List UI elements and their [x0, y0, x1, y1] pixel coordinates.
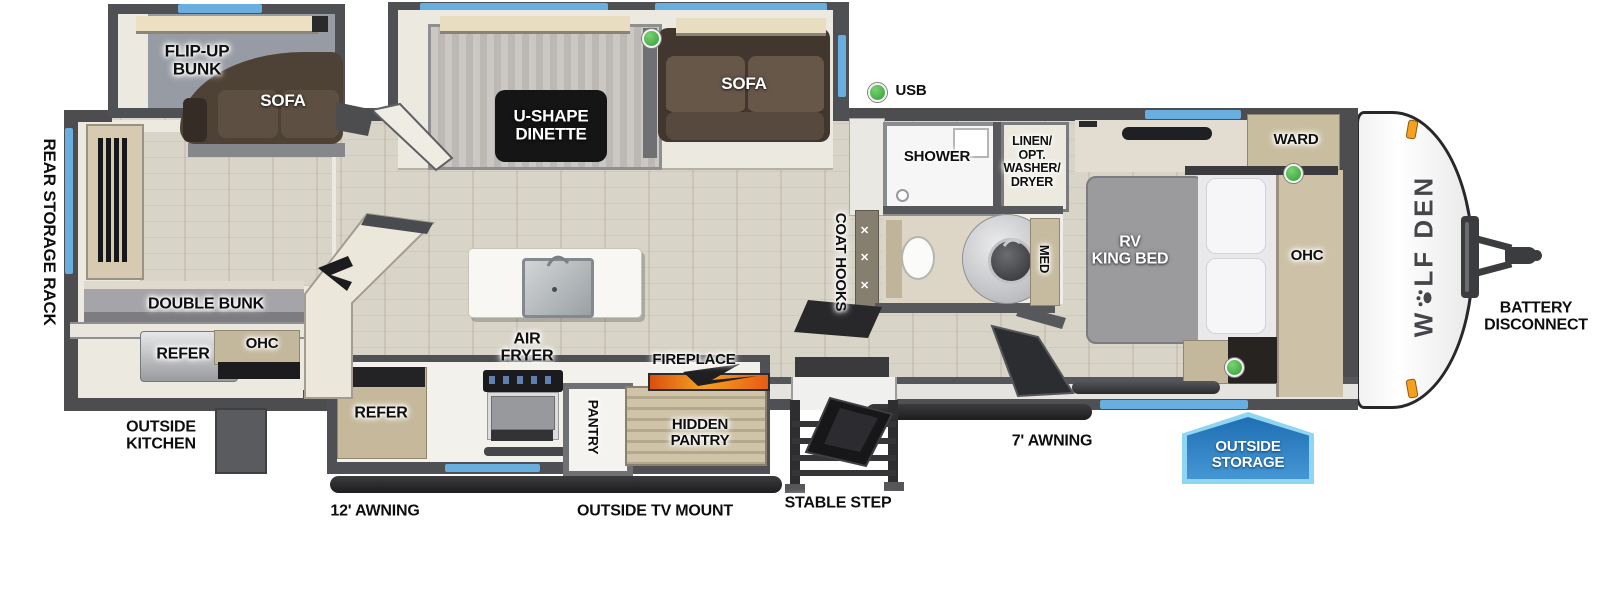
- range-mat: [484, 447, 566, 456]
- sink-drain: [552, 287, 557, 292]
- living-sofa-seat: [666, 112, 824, 140]
- vanity-sink: [988, 238, 1034, 284]
- range-drawer: [491, 430, 553, 441]
- step-rung: [792, 455, 896, 461]
- coat-hook-icon: ✕: [860, 224, 869, 237]
- label-refer-kitchen: REFER: [354, 404, 407, 421]
- step-rung: [792, 421, 896, 427]
- toilet: [901, 236, 935, 280]
- usb-indicator-dot: [1225, 358, 1244, 377]
- dinette-valance: [440, 16, 630, 34]
- pillow: [1206, 258, 1266, 334]
- range-oven-door: [491, 396, 555, 430]
- label-u-shape-dinette: U-SHAPE DINETTE: [513, 108, 588, 145]
- label-pantry: PANTRY: [585, 400, 600, 455]
- bedroom-window: [1145, 110, 1241, 119]
- bedroom-ohc-cabinet: [1276, 170, 1343, 397]
- usb-indicator-dot: [868, 83, 887, 102]
- label-sofa-bunk: SOFA: [260, 92, 306, 110]
- kitchen-refer-top: [337, 367, 425, 387]
- label-rear-storage-rack: REAR STORAGE RACK: [40, 138, 58, 325]
- bath-divider-h: [883, 206, 1063, 214]
- label-outside-tv-mount: OUTSIDE TV MOUNT: [577, 502, 733, 519]
- bath-divider-v: [993, 122, 1001, 210]
- label-usb: USB: [895, 83, 926, 99]
- label-sofa-living: SOFA: [721, 75, 767, 93]
- bed-bench: [1183, 340, 1229, 384]
- bunk-headboard-cap: [312, 16, 328, 32]
- headboard-dash: [1079, 121, 1097, 127]
- brand-logo: W LF DEN: [1409, 175, 1440, 337]
- label-coat-hooks: COAT HOOKS: [832, 213, 848, 312]
- label-air-fryer: AIR FRYER: [501, 331, 554, 366]
- coat-hook-icon: ✕: [860, 279, 869, 292]
- fireplace-unit: [648, 373, 770, 391]
- awning-roller-bar: [1072, 381, 1220, 394]
- label-double-bunk: DOUBLE BUNK: [148, 295, 264, 312]
- step-rung: [792, 438, 896, 444]
- label-awning-7: 7' AWNING: [1012, 432, 1093, 449]
- bath-bottom-wall: [875, 303, 1055, 313]
- hitch-coupler-tip: [1531, 250, 1542, 261]
- pillow: [1206, 178, 1266, 254]
- bottom-window: [1100, 400, 1248, 409]
- label-refer-rear: REFER: [156, 345, 209, 362]
- island-sink: [522, 258, 594, 318]
- label-fireplace: FIREPLACE: [652, 352, 735, 368]
- tongue-jack-icon: [1461, 216, 1479, 298]
- label-rv-king-bed: RV KING BED: [1092, 234, 1169, 269]
- label-linen: LINEN/ OPT. WASHER/ DRYER: [1004, 135, 1061, 189]
- toilet-vanity: [886, 220, 902, 298]
- slide-side-window: [838, 35, 846, 97]
- rear-storage-rack-slats: [98, 138, 130, 262]
- outside-kitchen-door: [215, 408, 267, 474]
- step-foot: [884, 482, 904, 491]
- label-med: MED: [1037, 245, 1051, 273]
- headboard-bar: [1122, 127, 1212, 140]
- label-awning-12: 12' AWNING: [330, 502, 419, 519]
- label-stable-step: STABLE STEP: [785, 494, 892, 511]
- range-knobs: [489, 376, 557, 384]
- outside-kitchen-counter: [218, 362, 300, 379]
- shower-drain: [896, 189, 909, 202]
- label-outside-kitchen: OUTSIDE KITCHEN: [126, 419, 196, 454]
- rv-floorplan-diagram: W LF DEN: [0, 0, 1600, 590]
- label-battery-disconnect: BATTERY DISCONNECT: [1484, 300, 1588, 335]
- tongue-jack-highlight: [1465, 222, 1469, 292]
- bunk-slide-window: [178, 4, 262, 13]
- paw-icon: [1416, 290, 1432, 307]
- bunk-headboard: [136, 16, 318, 34]
- coat-hook-icon: ✕: [860, 251, 869, 264]
- label-hidden-pantry: HIDDEN PANTRY: [671, 417, 730, 449]
- bunk-slide-shadow: [188, 143, 345, 157]
- label-outside-storage: OUTSIDE STORAGE: [1212, 439, 1285, 471]
- sofa-valance: [676, 18, 826, 36]
- usb-indicator-dot: [642, 29, 661, 48]
- label-ward: WARD: [1273, 132, 1318, 148]
- label-ohc-rear: OHC: [246, 336, 279, 352]
- brand-logo-part2: LF DEN: [1409, 175, 1440, 287]
- entry-step-well: [795, 357, 889, 378]
- bath-left-wall: [849, 118, 885, 216]
- double-bunk-platform: [84, 281, 304, 289]
- step-rung: [792, 470, 896, 476]
- step-foot: [785, 484, 805, 493]
- kitchen-slide-window: [445, 464, 540, 472]
- label-flip-up-bunk: FLIP-UP BUNK: [165, 43, 230, 80]
- brand-logo-part1: W: [1409, 310, 1440, 338]
- label-shower: SHOWER: [904, 149, 970, 165]
- awning-12-bar: [330, 476, 782, 493]
- rear-bottom-wall: [64, 398, 310, 411]
- awning-7-bar: [866, 404, 1092, 420]
- usb-indicator-dot: [1284, 164, 1303, 183]
- label-ohc-bedroom: OHC: [1291, 248, 1324, 264]
- ward-shadow: [1185, 166, 1338, 175]
- bunk-sofa-armrest: [183, 98, 207, 142]
- rear-window: [65, 128, 73, 274]
